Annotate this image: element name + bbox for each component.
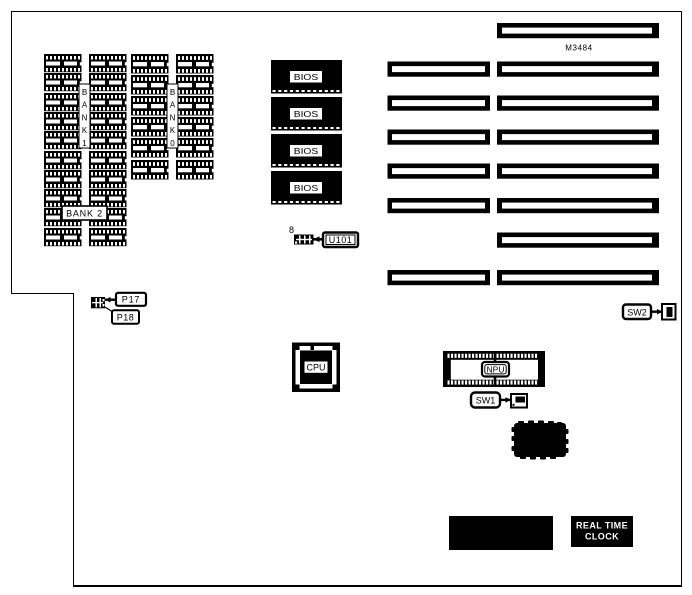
svg-text:NPU: NPU	[487, 365, 505, 375]
svg-text:N: N	[170, 113, 176, 122]
svg-text:BANK 2: BANK 2	[66, 209, 103, 219]
svg-text:CPU: CPU	[306, 363, 325, 373]
svg-text:BIOS: BIOS	[294, 72, 319, 82]
svg-text:BIOS: BIOS	[294, 146, 319, 156]
svg-text:0: 0	[170, 139, 175, 148]
svg-text:K: K	[170, 126, 176, 135]
svg-text:BIOS: BIOS	[294, 183, 319, 193]
svg-text:BIOS: BIOS	[294, 109, 319, 119]
svg-text:N: N	[82, 113, 88, 122]
svg-text:1: 1	[82, 139, 87, 148]
svg-text:SW1: SW1	[476, 396, 496, 406]
svg-text:M3484: M3484	[565, 44, 592, 53]
svg-text:A: A	[170, 101, 176, 110]
svg-text:P18: P18	[117, 313, 135, 323]
svg-text:P17: P17	[122, 295, 140, 305]
svg-text:SW2: SW2	[627, 307, 647, 317]
svg-text:CLOCK: CLOCK	[585, 532, 619, 542]
svg-text:K: K	[82, 126, 88, 135]
svg-text:B: B	[170, 88, 175, 97]
svg-text:A: A	[82, 101, 88, 110]
svg-text:B: B	[82, 88, 87, 97]
svg-text:U101: U101	[329, 235, 353, 245]
svg-text:8: 8	[289, 225, 294, 235]
svg-text:REAL TIME: REAL TIME	[576, 521, 628, 531]
